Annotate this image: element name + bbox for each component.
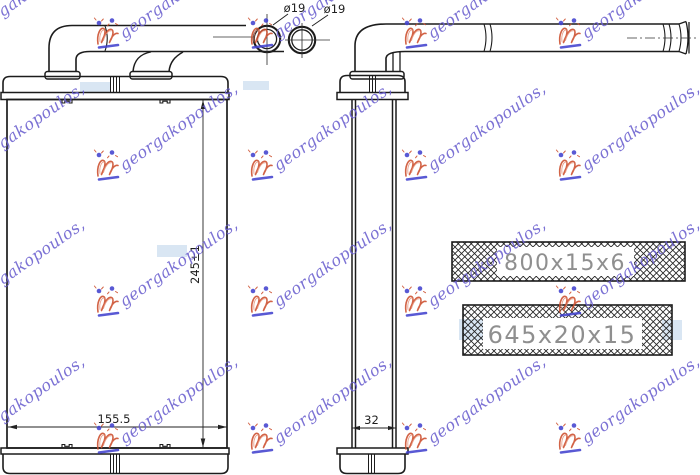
spec-bar-2: 645x20x15 <box>463 305 672 355</box>
port-diameter-label-1: ø19 <box>284 1 306 15</box>
port-diameter-label-2: ø19 <box>324 2 346 16</box>
height-dimension-label: 245±1 <box>188 245 202 284</box>
spec-bar-1: 800x15x6 <box>452 242 685 281</box>
width-dimension-label: 155.5 <box>98 412 131 426</box>
front-view <box>1 14 330 474</box>
spec-bar-label-2: 645x20x15 <box>488 321 637 349</box>
technical-drawing-page: 800x15x6 645x20x15 155.5 245±1 32 ø19 ø1… <box>0 0 700 475</box>
depth-dimension-label: 32 <box>364 413 379 427</box>
heater-core-drawing: 800x15x6 645x20x15 155.5 245±1 32 ø19 ø1… <box>0 0 700 475</box>
spec-bar-label-1: 800x15x6 <box>504 251 626 276</box>
